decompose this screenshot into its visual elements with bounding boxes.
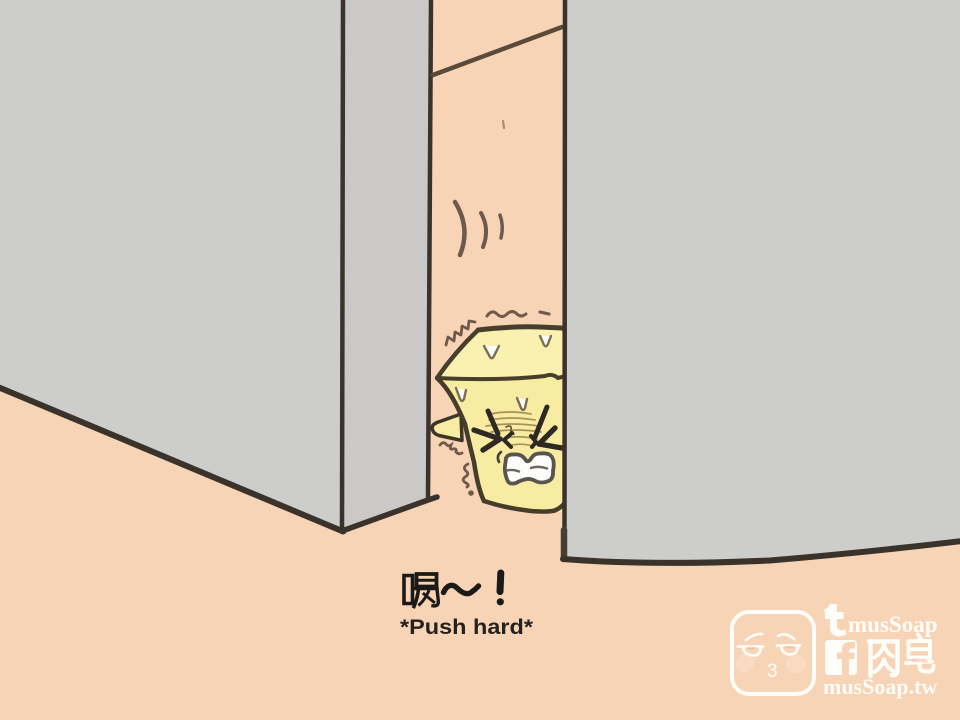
svg-text:musSoap: musSoap <box>848 612 937 637</box>
svg-text:musSoap.tw: musSoap.tw <box>823 674 937 699</box>
svg-text:3: 3 <box>767 661 778 682</box>
svg-text:*Push hard*: *Push hard* <box>400 616 534 639</box>
